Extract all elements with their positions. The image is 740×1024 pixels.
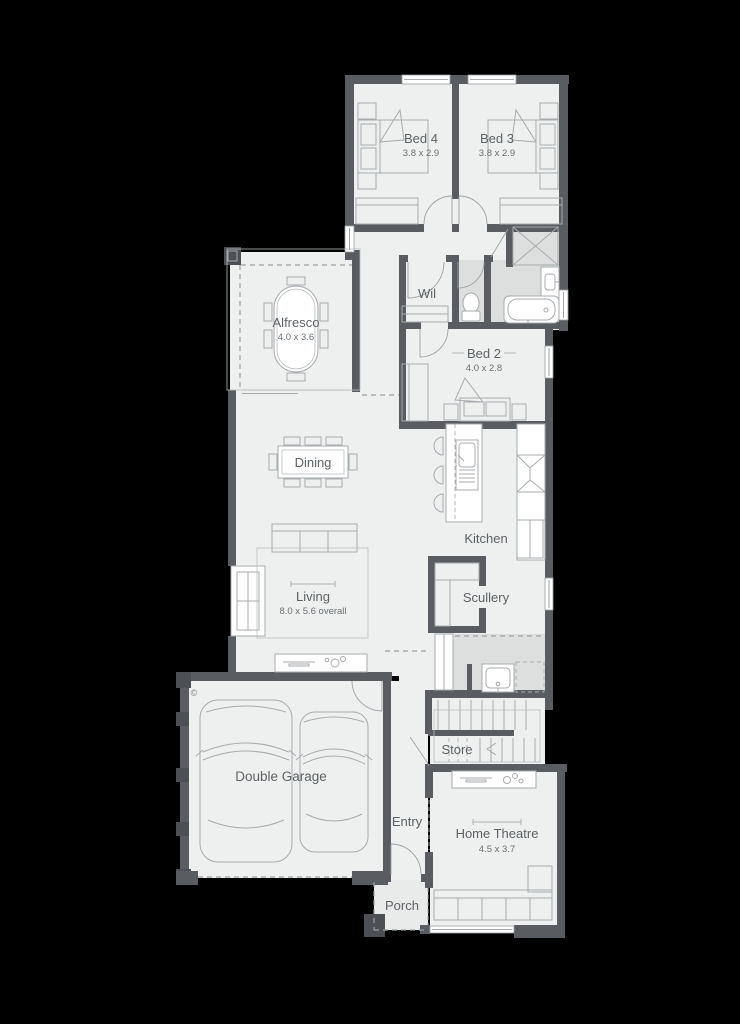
label-porch: Porch xyxy=(385,898,419,913)
floor-plan-drawing: Bed 4 3.8 x 2.9 Bed 3 3.8 x 2.9 Wil Alfr… xyxy=(0,0,740,1024)
label-alfresco: Alfresco xyxy=(273,315,320,330)
label-bed4: Bed 4 xyxy=(404,131,438,146)
dims-bed4: 3.8 x 2.9 xyxy=(403,148,439,159)
label-home-theatre: Home Theatre xyxy=(456,826,539,841)
porch-pier xyxy=(364,914,385,937)
kitchen-island-icon xyxy=(446,424,482,522)
label-dining: Dining xyxy=(295,455,332,470)
dims-bed2: 4.0 x 2.8 xyxy=(466,363,502,374)
tv-unit-hall-icon xyxy=(275,654,367,672)
window-bed3 xyxy=(468,75,516,84)
floor-plan-canvas: Bed 4 3.8 x 2.9 Bed 3 3.8 x 2.9 Wil Alfr… xyxy=(0,0,740,1024)
window-bed2 xyxy=(545,346,553,378)
label-scullery: Scullery xyxy=(463,590,510,605)
label-entry: Entry xyxy=(392,814,423,829)
window-hall-left xyxy=(345,226,354,252)
window-bed4 xyxy=(402,75,450,84)
label-kitchen: Kitchen xyxy=(464,531,507,546)
toilet-icon xyxy=(462,293,480,321)
label-double-garage: Double Garage xyxy=(235,769,327,784)
window-theatre xyxy=(430,926,514,933)
label-bed3: Bed 3 xyxy=(480,131,514,146)
label-living: Living xyxy=(296,589,330,604)
label-wil: Wil xyxy=(418,286,436,301)
dims-living: 8.0 x 5.6 overall xyxy=(279,606,346,617)
alfresco-post xyxy=(224,247,241,265)
vanity-icon xyxy=(541,267,559,298)
copyright-symbol: © xyxy=(191,688,198,698)
dims-alfresco: 4.0 x 3.6 xyxy=(278,332,314,343)
theatre-tv-unit-icon xyxy=(452,771,536,788)
bathtub-icon xyxy=(504,296,559,323)
label-store: Store xyxy=(441,742,472,757)
window-scullery xyxy=(545,578,553,610)
window-seat-living xyxy=(231,566,265,636)
window-bath xyxy=(559,290,568,320)
dims-bed3: 3.8 x 2.9 xyxy=(479,148,515,159)
label-bed2: Bed 2 xyxy=(467,346,501,361)
kitchen-bench-icon xyxy=(517,424,545,560)
dims-home-theatre: 4.5 x 3.7 xyxy=(479,844,515,855)
floor-plates xyxy=(186,79,564,930)
